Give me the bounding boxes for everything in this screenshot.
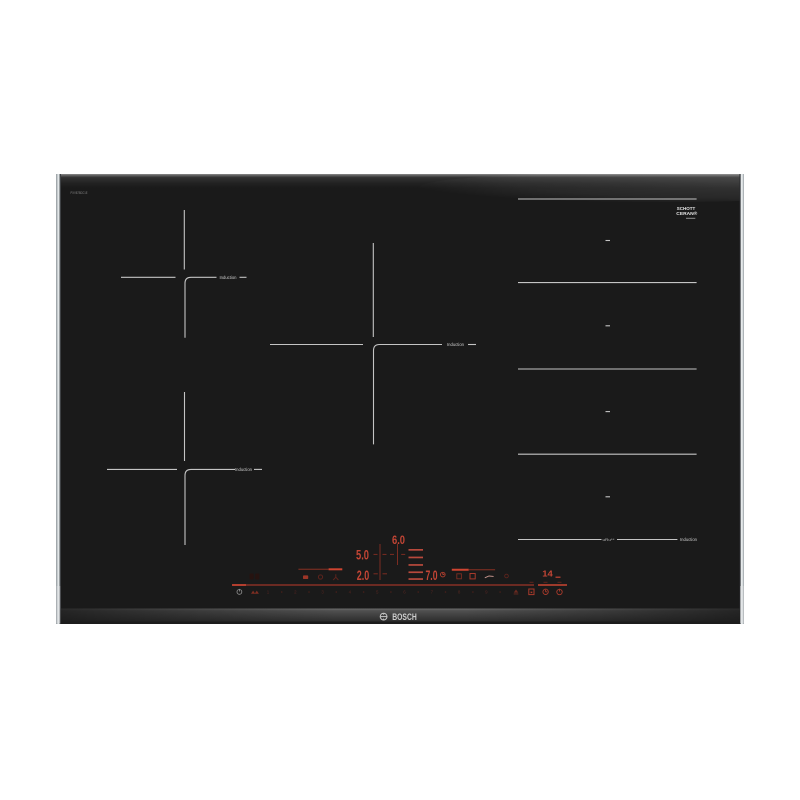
svg-text:Induction: Induction xyxy=(680,537,698,542)
svg-text:Induction: Induction xyxy=(220,275,238,280)
svg-text:5.0: 5.0 xyxy=(356,547,369,562)
svg-text:6.0: 6.0 xyxy=(392,533,405,547)
svg-text:Induction: Induction xyxy=(447,342,465,347)
svg-text:uRu**: uRu** xyxy=(603,538,616,542)
svg-text:Induction: Induction xyxy=(235,467,253,472)
svg-text:2.0: 2.0 xyxy=(357,568,370,583)
svg-text:7.0: 7.0 xyxy=(426,568,438,583)
svg-text:CERAN®: CERAN® xyxy=(676,211,698,216)
svg-text:14: 14 xyxy=(542,569,553,578)
svg-text:BOSCH: BOSCH xyxy=(392,612,417,622)
svg-text:PXV875DC1E: PXV875DC1E xyxy=(71,191,88,195)
